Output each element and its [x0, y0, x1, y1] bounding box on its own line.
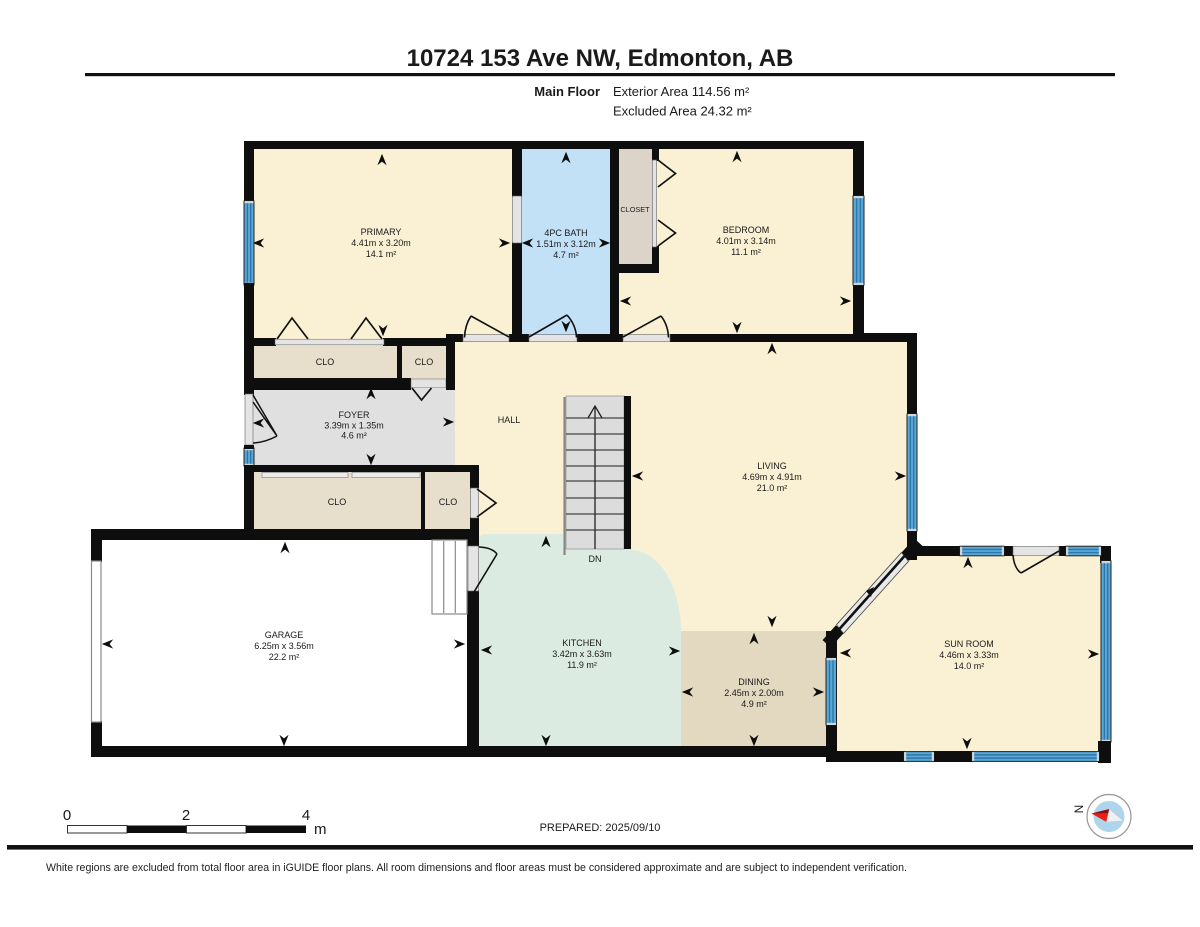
svg-text:White regions are excluded fro: White regions are excluded from total fl…: [46, 862, 907, 874]
svg-text:PREPARED: 2025/09/10: PREPARED: 2025/09/10: [540, 822, 661, 834]
svg-text:CLO: CLO: [439, 497, 458, 507]
svg-text:CLO: CLO: [328, 497, 347, 507]
svg-text:CLO: CLO: [415, 357, 434, 367]
svg-text:CLO: CLO: [316, 357, 335, 367]
svg-text:DN: DN: [589, 554, 602, 564]
svg-text:CLOSET: CLOSET: [620, 205, 650, 214]
svg-text:10724 153 Ave NW, Edmonton, AB: 10724 153 Ave NW, Edmonton, AB: [407, 45, 794, 72]
svg-text:0: 0: [63, 807, 71, 824]
svg-text:Main Floor: Main Floor: [534, 84, 600, 99]
svg-text:N: N: [1072, 805, 1086, 814]
svg-text:4: 4: [302, 807, 310, 824]
svg-text:HALL: HALL: [498, 415, 521, 425]
svg-text:Excluded Area 24.32 m²: Excluded Area 24.32 m²: [613, 104, 752, 119]
svg-text:2: 2: [182, 807, 190, 824]
svg-text:m: m: [314, 821, 327, 838]
svg-text:Exterior Area 114.56 m²: Exterior Area 114.56 m²: [613, 84, 750, 99]
